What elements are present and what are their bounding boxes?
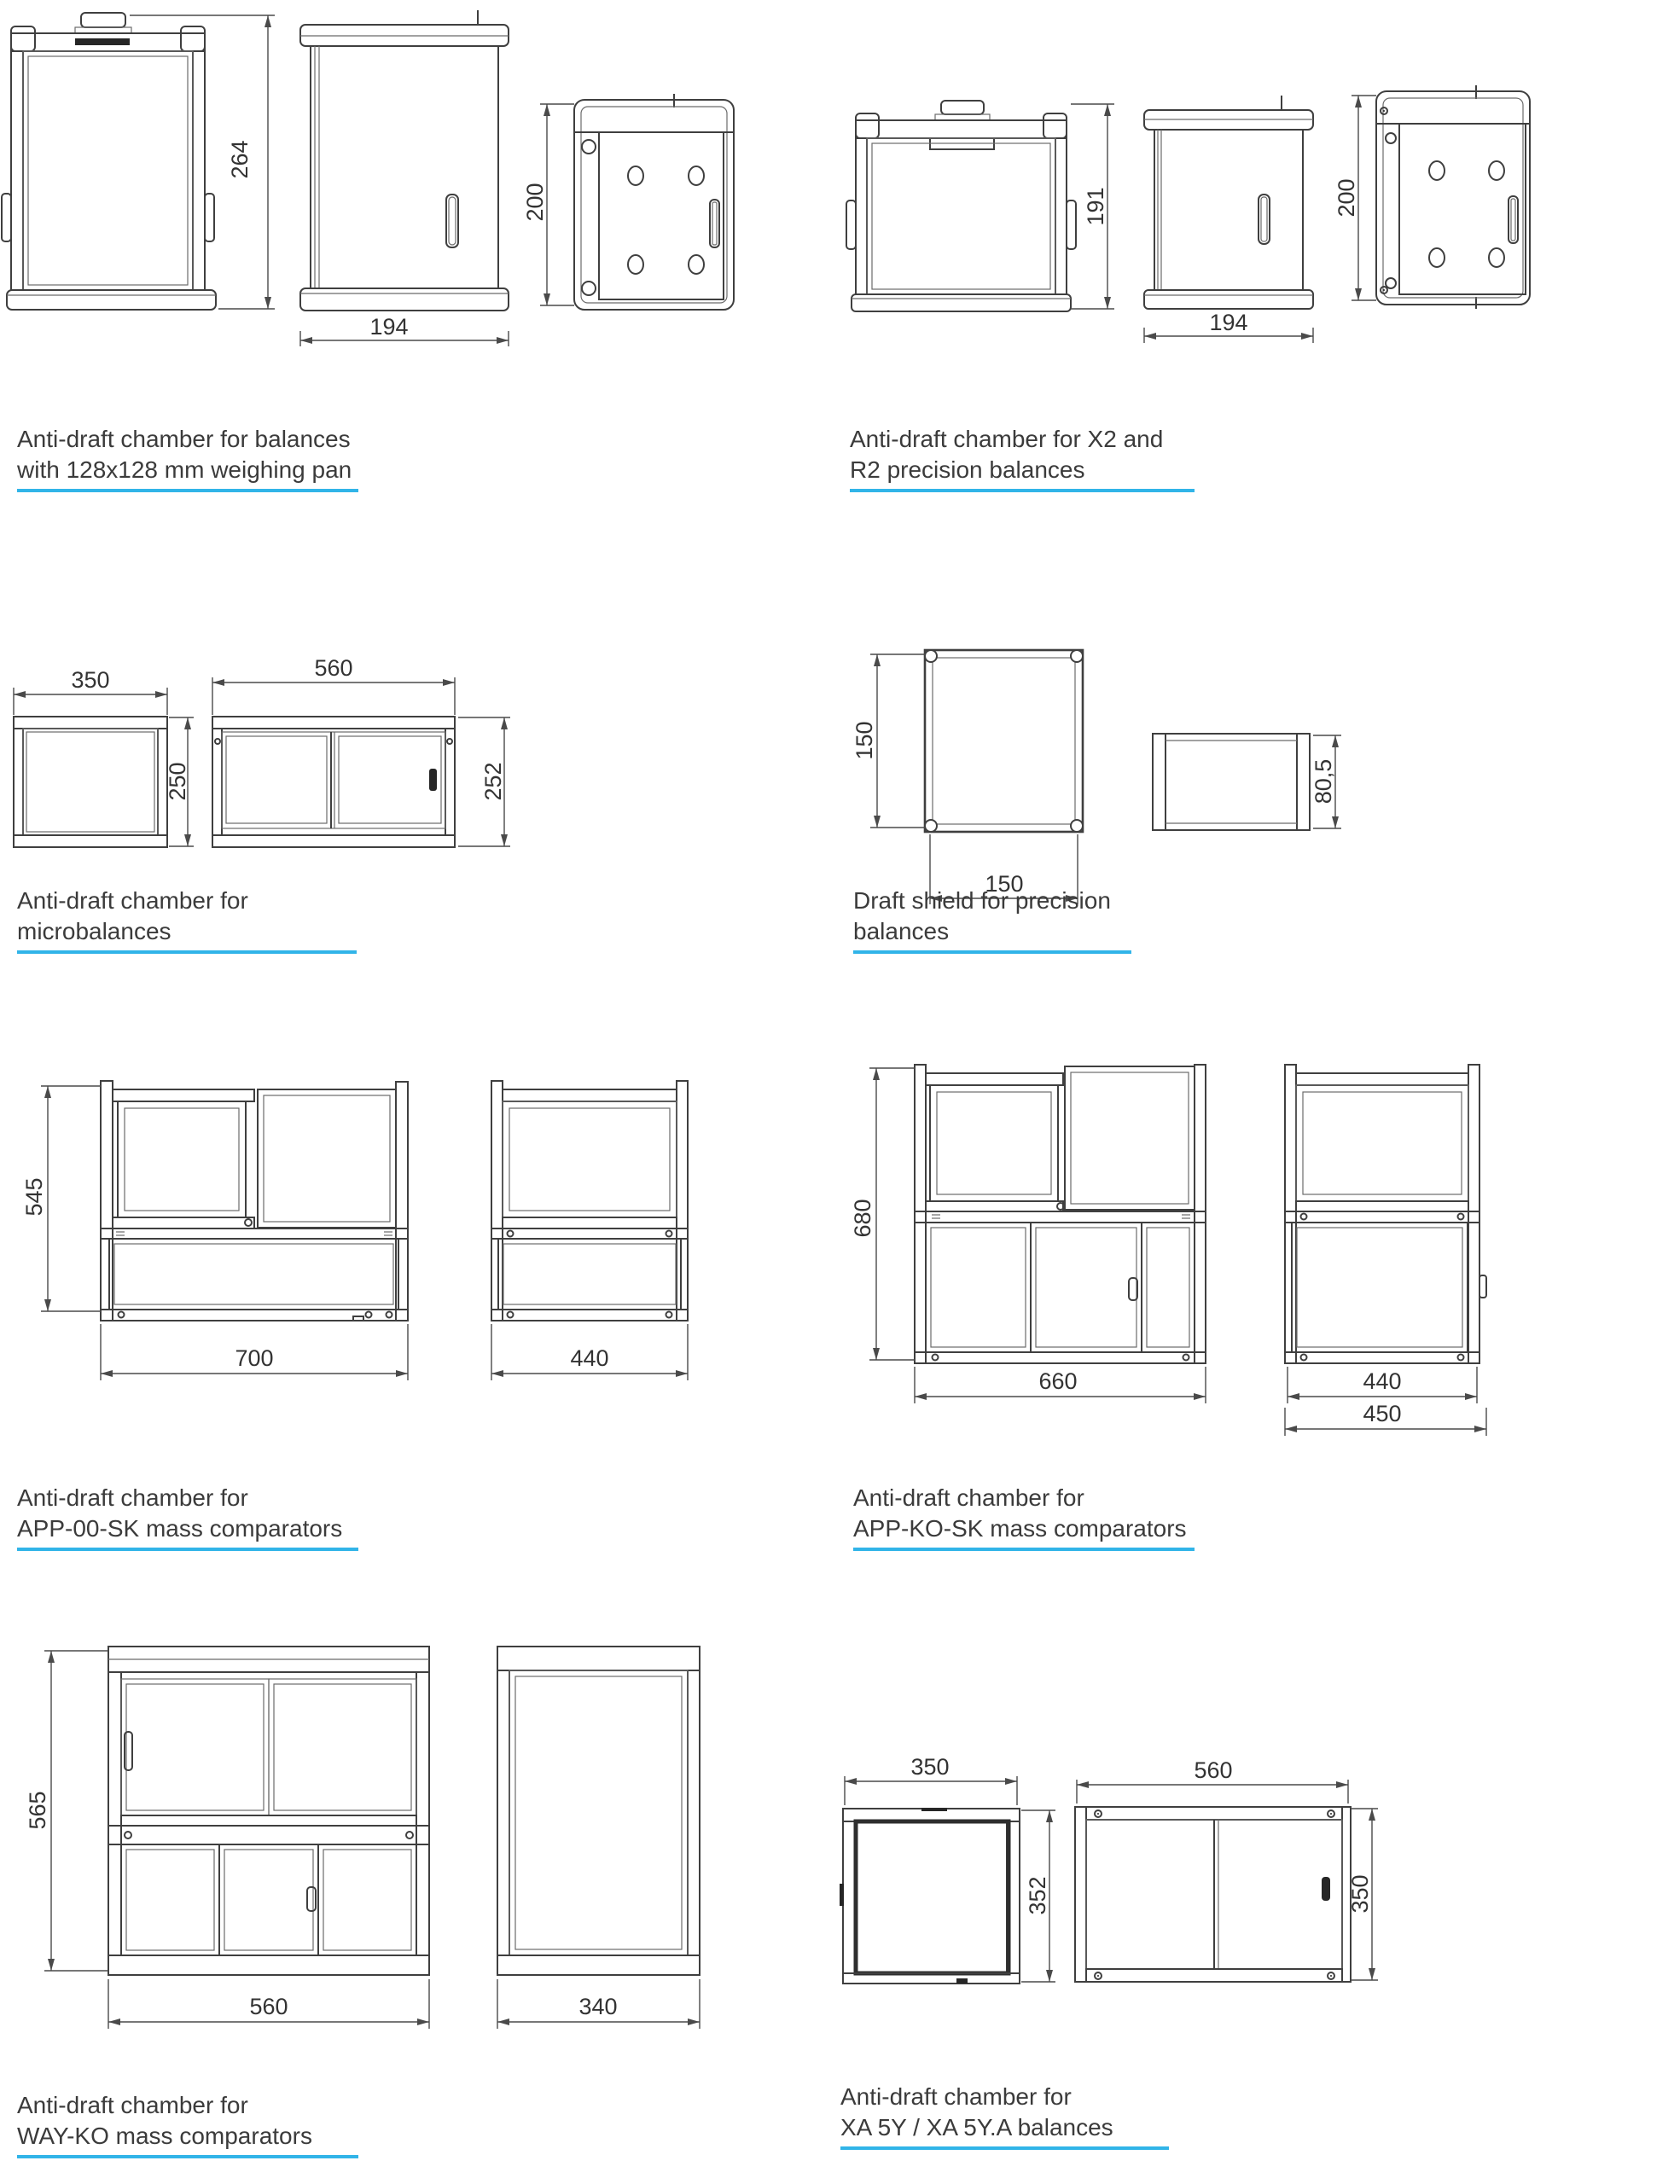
caption-line-1: Anti-draft chamber for <box>17 886 384 916</box>
front-view-pan128 <box>2 13 216 310</box>
dim-width-pan128: 194 <box>300 314 509 346</box>
window-handle <box>125 1732 132 1770</box>
dim-width-app00sk: 700 <box>101 1324 408 1380</box>
dim-height-shield: 80,5 <box>1311 735 1341 828</box>
dim-height-pan128: 264 <box>130 15 275 309</box>
door-handle <box>1322 1877 1330 1901</box>
dim-outer-depth-appkosk: 450 <box>1285 1401 1486 1436</box>
dim-label-outer-depth: 450 <box>1363 1401 1401 1426</box>
dim-front-width-xa5y: 350 <box>845 1754 1017 1805</box>
door-slot <box>446 195 458 247</box>
dim-label-depth: 200 <box>522 183 548 221</box>
side-view-pan128 <box>300 10 509 311</box>
caption-underline <box>850 489 1195 492</box>
side-view-app00sk <box>491 1081 688 1321</box>
dim-depth-app00sk: 440 <box>491 1324 688 1380</box>
right-handle <box>205 194 214 241</box>
side-handle <box>1479 1275 1486 1298</box>
caption-underline <box>17 1548 358 1551</box>
caption-line-1: Anti-draft chamber for <box>17 2090 384 2121</box>
front-view-micro <box>14 717 167 847</box>
dim-label-side-width: 560 <box>1194 1757 1232 1783</box>
caption-appkosk: Anti-draft chamber for APP-KO-SK mass co… <box>853 1483 1220 1551</box>
dim-label-width: 560 <box>249 1994 288 2019</box>
dim-label-front-height: 352 <box>1025 1876 1050 1914</box>
side-view-wayko <box>497 1647 700 1975</box>
caption-x2r2: Anti-draft chamber for X2 and R2 precisi… <box>850 424 1217 492</box>
caption-underline <box>17 489 358 492</box>
side-view-micro <box>212 717 455 847</box>
caption-line-1: Anti-draft chamber for <box>853 1483 1220 1513</box>
caption-line-2: with 128x128 mm weighing pan <box>17 455 384 485</box>
caption-micro: Anti-draft chamber for microbalances <box>17 886 384 954</box>
caption-wayko: Anti-draft chamber for WAY-KO mass compa… <box>17 2090 384 2158</box>
dim-side-width-micro: 560 <box>212 655 455 715</box>
caption-line-1: Anti-draft chamber for balances <box>17 424 384 455</box>
dim-label-front-width: 350 <box>71 667 109 693</box>
dim-label-front-height: 250 <box>165 762 190 800</box>
side-view-appkosk <box>1285 1065 1486 1363</box>
dim-label-height: 264 <box>227 140 253 178</box>
front-view-x2r2 <box>846 101 1076 311</box>
dim-depth-wayko: 340 <box>497 1979 700 2029</box>
door-slot <box>1259 195 1270 244</box>
dim-label-width: 660 <box>1038 1368 1077 1394</box>
left-handle <box>846 200 856 249</box>
dim-width-wayko: 560 <box>108 1979 429 2029</box>
dim-label-depth: 200 <box>1334 178 1359 217</box>
caption-underline <box>853 1548 1195 1551</box>
left-handle <box>2 194 11 241</box>
side-view-xa5y <box>1075 1807 1351 1982</box>
glass-door-frame <box>856 1821 1009 1973</box>
side-notch <box>840 1884 844 1906</box>
dim-height-app00sk: 545 <box>21 1086 101 1311</box>
dim-depth-x2r2: 200 <box>1334 96 1376 300</box>
dim-front-width-micro: 350 <box>14 667 167 715</box>
caption-line-2: microbalances <box>17 916 384 947</box>
dim-label-width: 194 <box>1209 310 1247 335</box>
dim-label-depth: 440 <box>570 1345 608 1371</box>
dim-label-height: 80,5 <box>1311 759 1336 804</box>
dim-label-width: 194 <box>369 314 408 340</box>
dim-height-wayko: 565 <box>25 1651 108 1971</box>
front-view-appkosk <box>915 1065 1206 1363</box>
caption-app00sk: Anti-draft chamber for APP-00-SK mass co… <box>17 1483 384 1551</box>
dim-depth-appkosk: 440 <box>1288 1367 1477 1403</box>
dim-label-side-height: 252 <box>480 762 506 800</box>
dim-front-height-xa5y: 352 <box>1021 1810 1055 1982</box>
front-view-xa5y <box>840 1809 1020 1984</box>
caption-shield: Draft shield for precision balances <box>853 886 1220 954</box>
caption-underline <box>17 2155 358 2158</box>
caption-pan128: Anti-draft chamber for balances with 128… <box>17 424 384 492</box>
top-view-x2r2 <box>1376 85 1530 309</box>
caption-line-1: Anti-draft chamber for X2 and <box>850 424 1217 455</box>
dim-width-shield: 150 <box>852 654 925 828</box>
front-view-app00sk <box>101 1081 408 1321</box>
caption-line-2: R2 precision balances <box>850 455 1217 485</box>
dim-side-height-micro: 252 <box>458 717 510 846</box>
caption-line-2: XA 5Y / XA 5Y.A balances <box>840 2112 1207 2143</box>
caption-line-2: APP-KO-SK mass comparators <box>853 1513 1220 1544</box>
front-view-wayko <box>108 1647 429 1975</box>
dim-label-side-height: 350 <box>1347 1874 1373 1913</box>
side-view-x2r2 <box>1144 96 1313 309</box>
technical-drawings-canvas: 264 194 200 <box>0 0 1680 2184</box>
caption-line-1: Anti-draft chamber for <box>840 2082 1207 2112</box>
dim-label-height: 545 <box>21 1177 47 1216</box>
caption-line-2: APP-00-SK mass comparators <box>17 1513 384 1544</box>
dim-label-depth: 440 <box>1363 1368 1401 1394</box>
dim-side-width-xa5y: 560 <box>1077 1757 1348 1804</box>
dim-label-side-width: 560 <box>314 655 352 681</box>
dim-label-depth: 340 <box>578 1994 617 2019</box>
dim-height-x2r2: 191 <box>1071 104 1114 309</box>
dim-label-height: 680 <box>850 1199 875 1237</box>
catalog-page: 264 194 200 <box>0 0 1680 2184</box>
caption-underline <box>17 950 357 954</box>
dim-width-appkosk: 660 <box>915 1367 1206 1403</box>
top-view-shield <box>925 650 1083 832</box>
dim-width-x2r2: 194 <box>1144 310 1313 343</box>
caption-xa5y: Anti-draft chamber for XA 5Y / XA 5Y.A b… <box>840 2082 1207 2150</box>
right-handle <box>1067 200 1076 249</box>
dim-label-width: 150 <box>852 721 877 759</box>
dim-side-height-xa5y: 350 <box>1347 1809 1378 1980</box>
door-handle <box>429 769 437 791</box>
dim-height-appkosk: 680 <box>850 1068 915 1360</box>
dim-label-height: 565 <box>25 1791 50 1829</box>
caption-line-2: balances <box>853 916 1220 947</box>
side-view-shield <box>1153 734 1310 830</box>
top-view-pan128 <box>574 94 734 310</box>
caption-line-1: Draft shield for precision <box>853 886 1220 916</box>
dim-depth-pan128: 200 <box>522 104 574 305</box>
dim-front-height-micro: 250 <box>165 717 194 846</box>
caption-line-1: Anti-draft chamber for <box>17 1483 384 1513</box>
caption-underline <box>840 2146 1169 2150</box>
dim-label-width: 700 <box>235 1345 273 1371</box>
caption-line-2: WAY-KO mass comparators <box>17 2121 384 2152</box>
caption-underline <box>853 950 1131 954</box>
dim-label-height: 191 <box>1083 187 1108 225</box>
door-handle <box>307 1887 316 1911</box>
top-slot <box>75 38 130 45</box>
dim-label-front-width: 350 <box>910 1754 949 1780</box>
